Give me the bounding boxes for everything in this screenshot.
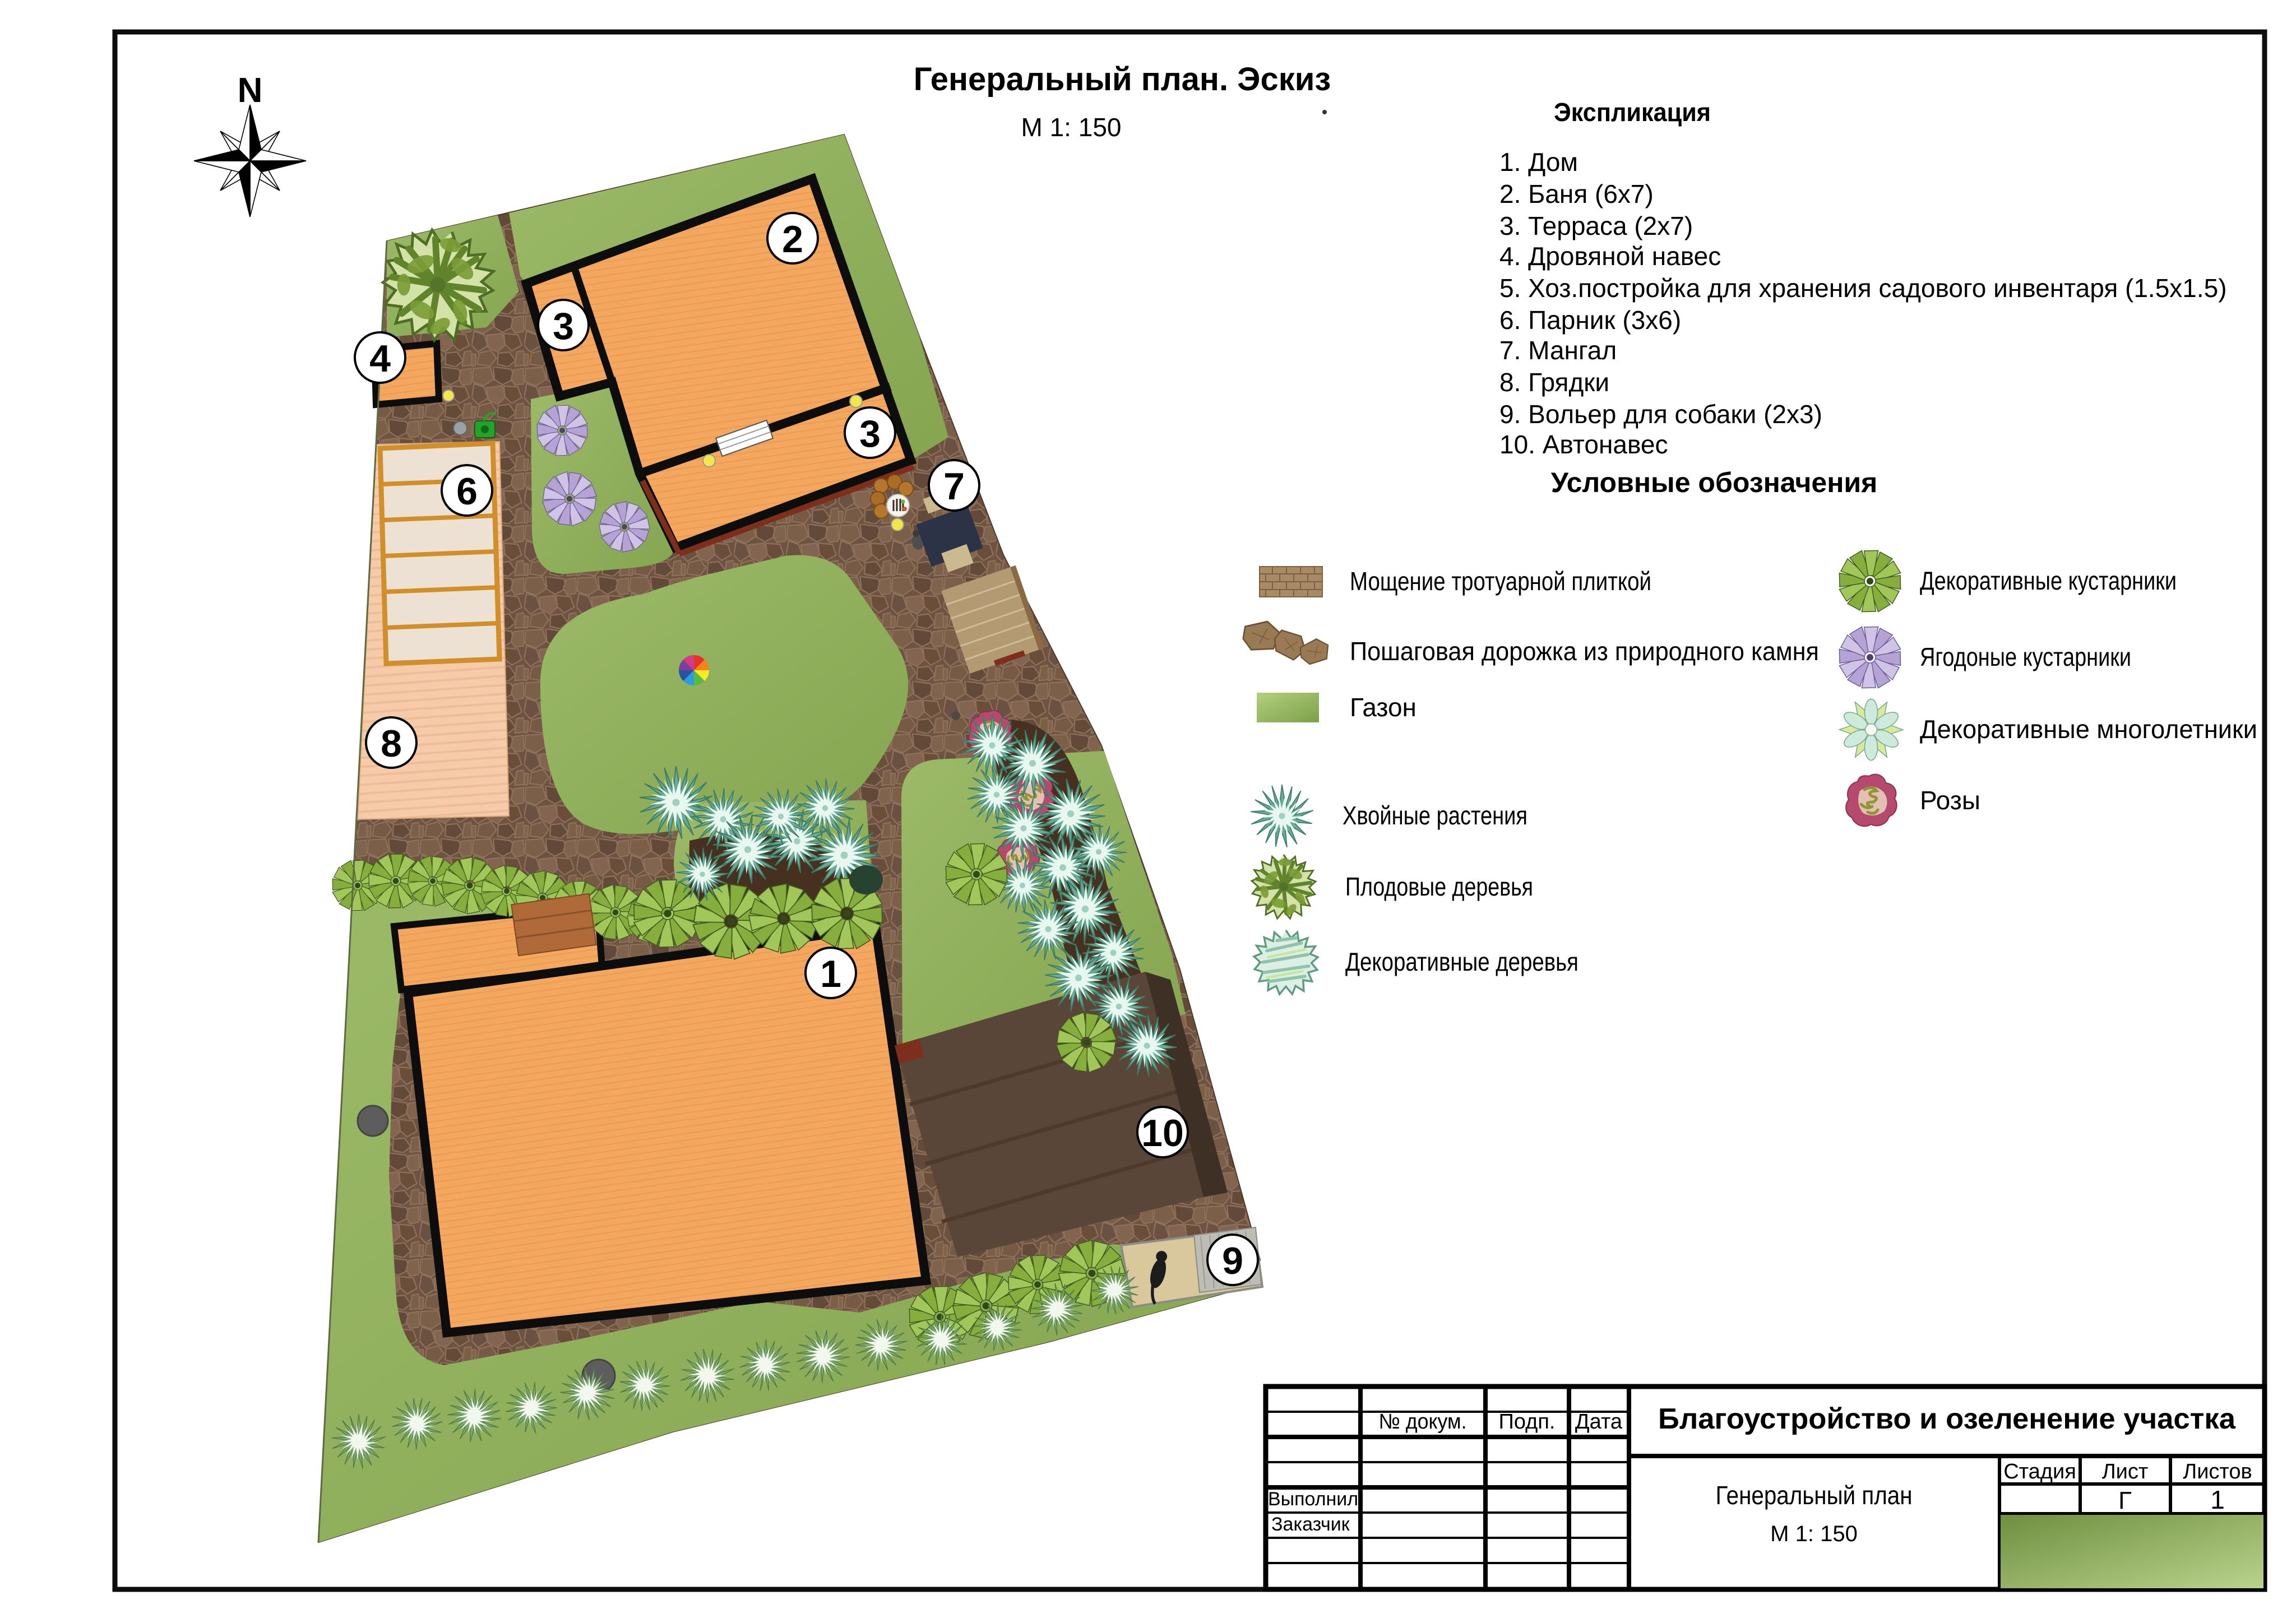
svg-text:6: 6 <box>456 470 478 513</box>
svg-text:Условные обозначения: Условные обозначения <box>1551 467 1878 498</box>
svg-text:N: N <box>238 71 263 110</box>
svg-text:Выполнил: Выполнил <box>1268 1488 1358 1510</box>
svg-text:Хвойные растения: Хвойные растения <box>1343 801 1527 830</box>
svg-text:10: 10 <box>1141 1112 1184 1154</box>
svg-text:Генеральный план: Генеральный план <box>1716 1481 1913 1510</box>
svg-text:Благоустройство и озеленение у: Благоустройство и озеленение участка <box>1658 1403 2236 1435</box>
svg-text:Плодовые деревья: Плодовые деревья <box>1345 872 1533 901</box>
svg-text:Ягодоные кустарники: Ягодоные кустарники <box>1920 642 2131 671</box>
svg-text:Генеральный план. Эскиз: Генеральный план. Эскиз <box>914 61 1331 98</box>
svg-text:6. Парник (3х6): 6. Парник (3х6) <box>1499 305 1681 335</box>
svg-text:Экспликация: Экспликация <box>1554 98 1711 127</box>
svg-text:4. Дровяной навес: 4. Дровяной навес <box>1499 242 1721 271</box>
svg-text:№ докум.: № докум. <box>1379 1410 1467 1434</box>
svg-text:Мощение тротуарной плиткой: Мощение тротуарной плиткой <box>1350 567 1651 596</box>
svg-text:Декоративные кустарники: Декоративные кустарники <box>1920 566 2177 595</box>
svg-text:Декоративные деревья: Декоративные деревья <box>1345 947 1578 976</box>
svg-text:Лист: Лист <box>2102 1460 2149 1483</box>
svg-text:3. Терраса (2х7): 3. Терраса (2х7) <box>1499 211 1693 240</box>
svg-text:М 1: 150: М 1: 150 <box>1021 113 1122 142</box>
svg-text:Розы: Розы <box>1920 786 1980 815</box>
svg-text:Подп.: Подп. <box>1499 1410 1556 1434</box>
svg-text:9: 9 <box>1222 1240 1243 1282</box>
svg-text:1: 1 <box>2210 1485 2225 1514</box>
svg-text:1. Дом: 1. Дом <box>1499 147 1578 177</box>
svg-text:7. Мангал: 7. Мангал <box>1499 336 1617 365</box>
svg-text:9. Вольер для собаки (2х3): 9. Вольер для собаки (2х3) <box>1499 400 1822 429</box>
svg-text:М 1: 150: М 1: 150 <box>1770 1522 1858 1546</box>
svg-text:Пошаговая дорожка из природног: Пошаговая дорожка из природного камня <box>1350 637 1819 666</box>
svg-text:Листов: Листов <box>2183 1460 2252 1483</box>
svg-text:Декоративные многолетники: Декоративные многолетники <box>1920 715 2257 744</box>
svg-text:8. Грядки: 8. Грядки <box>1499 368 1609 397</box>
svg-text:7: 7 <box>943 465 965 508</box>
svg-text:3: 3 <box>553 305 574 347</box>
svg-text:10. Автонавес: 10. Автонавес <box>1499 430 1668 459</box>
svg-text:Дата: Дата <box>1575 1410 1623 1434</box>
svg-text:Заказчик: Заказчик <box>1271 1514 1350 1535</box>
svg-text:4: 4 <box>369 337 391 380</box>
svg-text:8: 8 <box>381 722 402 765</box>
svg-text:2. Баня (6х7): 2. Баня (6х7) <box>1499 179 1654 208</box>
svg-text:1: 1 <box>820 953 841 995</box>
svg-text:Стадия: Стадия <box>2003 1460 2076 1483</box>
svg-text:Г: Г <box>2118 1487 2132 1514</box>
svg-text:5. Хоз.постройка для хранения: 5. Хоз.постройка для хранения садового и… <box>1499 273 2227 303</box>
svg-text:3: 3 <box>859 412 881 455</box>
svg-text:Газон: Газон <box>1350 693 1417 722</box>
svg-text:2: 2 <box>782 218 803 261</box>
